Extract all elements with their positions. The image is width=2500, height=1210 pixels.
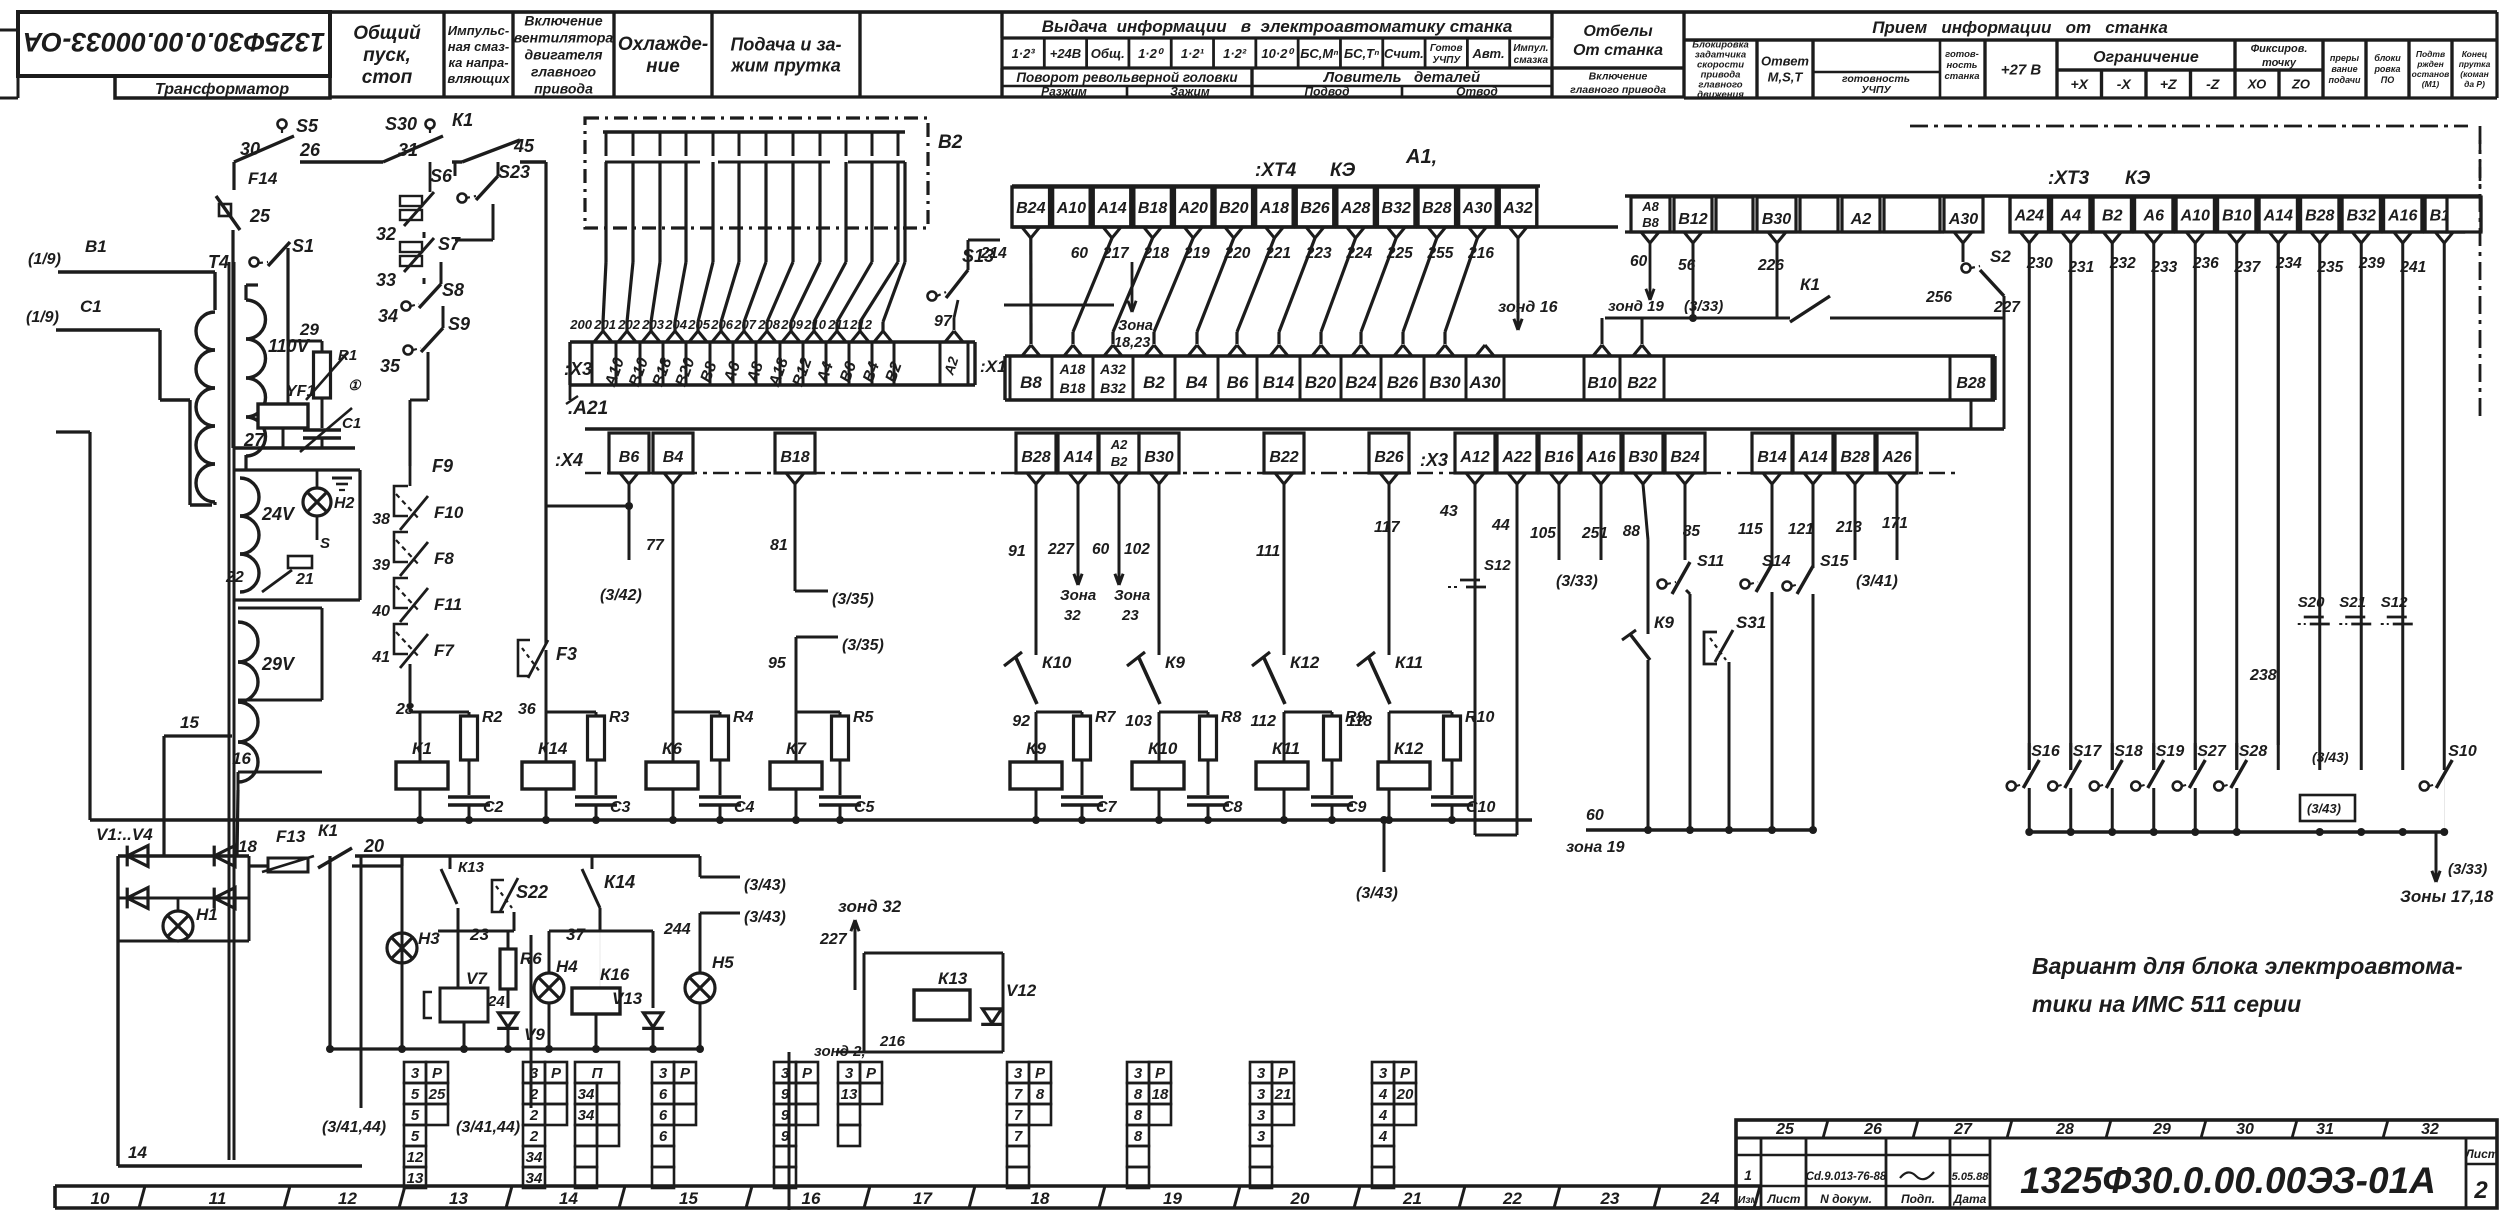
svg-text::Х3: :Х3 bbox=[564, 359, 592, 379]
svg-text:Импульс-: Импульс- bbox=[448, 23, 510, 38]
svg-text:жим прутка: жим прутка bbox=[730, 55, 840, 75]
svg-text:29: 29 bbox=[299, 320, 319, 339]
svg-text:С1: С1 bbox=[342, 415, 361, 432]
svg-text:21: 21 bbox=[1274, 1086, 1292, 1103]
svg-text:41: 41 bbox=[371, 649, 390, 666]
svg-text:32: 32 bbox=[376, 224, 396, 244]
svg-text:ржден: ржден bbox=[2416, 59, 2443, 69]
svg-text:А16: А16 bbox=[2387, 207, 2417, 224]
svg-text:201: 201 bbox=[593, 317, 616, 332]
svg-text:движения: движения bbox=[1697, 89, 1744, 100]
svg-text:К6: К6 bbox=[662, 739, 682, 758]
svg-text:В8: В8 bbox=[1642, 215, 1659, 230]
svg-text:238: 238 bbox=[2249, 667, 2277, 684]
svg-text:S10: S10 bbox=[2448, 743, 2477, 760]
svg-text:А14: А14 bbox=[2263, 207, 2293, 224]
svg-text:91: 91 bbox=[1008, 543, 1026, 560]
svg-text:F11: F11 bbox=[434, 595, 462, 614]
svg-text:227: 227 bbox=[1993, 299, 2021, 316]
svg-text:В18: В18 bbox=[1060, 380, 1086, 396]
svg-text:К13: К13 bbox=[938, 969, 968, 988]
svg-text:43: 43 bbox=[1439, 503, 1458, 520]
svg-text:3: 3 bbox=[411, 1065, 420, 1082]
svg-text:3: 3 bbox=[659, 1065, 668, 1082]
svg-text:10: 10 bbox=[91, 1189, 110, 1208]
svg-text:8: 8 bbox=[1134, 1107, 1143, 1124]
svg-text:(3/43): (3/43) bbox=[2312, 749, 2349, 765]
svg-text:главного: главного bbox=[531, 63, 597, 79]
svg-text:ZО: ZО bbox=[2291, 77, 2310, 92]
svg-text:1·2³: 1·2³ bbox=[1012, 46, 1036, 61]
svg-text:(3/33): (3/33) bbox=[1556, 573, 1598, 590]
svg-text:К9: К9 bbox=[1165, 653, 1185, 672]
svg-text:S2: S2 bbox=[1990, 247, 2011, 266]
svg-text:Авт.: Авт. bbox=[1471, 46, 1504, 61]
svg-text:24: 24 bbox=[487, 993, 505, 1010]
svg-text:F13: F13 bbox=[276, 827, 306, 846]
svg-text:Н1: Н1 bbox=[196, 905, 218, 924]
svg-text:95: 95 bbox=[768, 655, 787, 672]
svg-text:В28: В28 bbox=[1956, 375, 1985, 392]
svg-text:S19: S19 bbox=[2156, 743, 2185, 760]
svg-text:подачи: подачи bbox=[2329, 75, 2361, 85]
svg-text:В30: В30 bbox=[1628, 449, 1657, 466]
svg-text:20: 20 bbox=[363, 836, 384, 856]
svg-text:Зоны 17,18: Зоны 17,18 bbox=[2400, 887, 2494, 906]
svg-text:3: 3 bbox=[1257, 1065, 1266, 1082]
svg-text:M,S,T: M,S,T bbox=[1768, 70, 1804, 85]
svg-text:4: 4 bbox=[1378, 1107, 1388, 1124]
svg-text:(1/9): (1/9) bbox=[28, 251, 61, 268]
svg-text:Ловитель деталей: Ловитель деталей bbox=[1323, 69, 1480, 86]
svg-text:Р: Р bbox=[1400, 1065, 1411, 1082]
svg-text:В24: В24 bbox=[1345, 373, 1377, 392]
svg-text:-Z: -Z bbox=[2206, 76, 2220, 92]
svg-text::ХТ4: :ХТ4 bbox=[1255, 160, 1297, 181]
svg-text:F9: F9 bbox=[432, 456, 453, 476]
svg-text:Сd.9.013-76-88: Сd.9.013-76-88 bbox=[1806, 1171, 1887, 1183]
svg-text:тики на ИМС 511 серии: тики на ИМС 511 серии bbox=[2032, 991, 2301, 1017]
svg-text:34: 34 bbox=[378, 306, 398, 326]
svg-text:Т4: Т4 bbox=[208, 252, 229, 272]
svg-text:Р: Р bbox=[551, 1065, 562, 1082]
svg-text:пуск,: пуск, bbox=[363, 45, 411, 66]
svg-text:(М1): (М1) bbox=[2422, 79, 2440, 89]
svg-text:R1: R1 bbox=[338, 347, 357, 364]
svg-text:зонд 19: зонд 19 bbox=[1608, 298, 1664, 315]
svg-text:Н2: Н2 bbox=[334, 495, 355, 512]
svg-text:V9: V9 bbox=[524, 1025, 545, 1044]
svg-text:К1: К1 bbox=[452, 110, 473, 130]
svg-text:А18: А18 bbox=[1059, 361, 1086, 377]
svg-text:32: 32 bbox=[1064, 607, 1081, 624]
svg-text:224: 224 bbox=[1345, 245, 1372, 262]
svg-text:Охлажде-: Охлажде- bbox=[618, 34, 708, 55]
svg-text:210: 210 bbox=[803, 317, 826, 332]
svg-text:216: 216 bbox=[879, 1033, 906, 1050]
svg-text:(3/35): (3/35) bbox=[842, 637, 884, 654]
svg-text:27: 27 bbox=[1953, 1121, 1973, 1138]
svg-text:1325Ф30.0.00.00033-ОА: 1325Ф30.0.00.00033-ОА bbox=[23, 27, 325, 57]
svg-text:29V: 29V bbox=[261, 654, 296, 674]
svg-text:24V: 24V bbox=[261, 504, 296, 524]
svg-text:111: 111 bbox=[1256, 543, 1280, 560]
svg-text:112: 112 bbox=[1250, 713, 1276, 730]
svg-text:225: 225 bbox=[1386, 245, 1413, 262]
svg-text:К16: К16 bbox=[600, 965, 630, 984]
svg-text:①: ① bbox=[348, 377, 362, 393]
svg-text:7: 7 bbox=[1014, 1128, 1023, 1145]
svg-text:81: 81 bbox=[770, 537, 788, 554]
svg-text:Р: Р bbox=[1155, 1065, 1166, 1082]
svg-text:235: 235 bbox=[2316, 259, 2343, 276]
svg-text:45: 45 bbox=[513, 136, 535, 156]
svg-text:5: 5 bbox=[411, 1128, 420, 1145]
svg-text:S28: S28 bbox=[2239, 743, 2268, 760]
svg-text:Включение: Включение bbox=[1589, 70, 1648, 82]
svg-text:В2: В2 bbox=[1143, 373, 1165, 392]
svg-text:К11: К11 bbox=[1395, 653, 1423, 672]
svg-text:1: 1 bbox=[1744, 1167, 1752, 1183]
svg-text:К9: К9 bbox=[1654, 613, 1674, 632]
svg-text:F8: F8 bbox=[434, 549, 454, 568]
svg-text:239: 239 bbox=[2358, 255, 2385, 272]
svg-text:25: 25 bbox=[428, 1086, 446, 1103]
svg-text:В16: В16 bbox=[1544, 449, 1573, 466]
svg-text:К12: К12 bbox=[1290, 653, 1320, 672]
svg-text:А30: А30 bbox=[1948, 211, 1978, 228]
svg-text:+Z: +Z bbox=[2160, 76, 2177, 92]
svg-text:3: 3 bbox=[1379, 1065, 1388, 1082]
svg-text:Разжим: Разжим bbox=[1041, 85, 1087, 99]
svg-text:214: 214 bbox=[980, 245, 1007, 262]
svg-text::Х1: :Х1 bbox=[980, 357, 1006, 376]
svg-text:S5: S5 bbox=[296, 116, 319, 136]
svg-text:S12: S12 bbox=[1484, 557, 1511, 574]
svg-text:зона 19: зона 19 bbox=[1566, 839, 1625, 856]
svg-text:22: 22 bbox=[1502, 1189, 1522, 1208]
svg-text:34: 34 bbox=[578, 1107, 595, 1124]
svg-text:202: 202 bbox=[617, 317, 640, 332]
svg-text:18: 18 bbox=[1152, 1086, 1169, 1103]
svg-text:ПО: ПО bbox=[2381, 75, 2394, 85]
svg-text:S15: S15 bbox=[1820, 553, 1850, 570]
svg-text:К10: К10 bbox=[1148, 739, 1178, 758]
svg-text:Р: Р bbox=[1278, 1065, 1289, 1082]
svg-text:V7: V7 bbox=[466, 969, 488, 988]
svg-text:33: 33 bbox=[376, 270, 396, 290]
svg-text:В28: В28 bbox=[1422, 200, 1451, 217]
svg-text:S27: S27 bbox=[2197, 743, 2227, 760]
svg-text:вентилятора: вентилятора bbox=[514, 29, 614, 45]
svg-text:4: 4 bbox=[1378, 1128, 1388, 1145]
svg-text:29: 29 bbox=[2152, 1121, 2171, 1138]
svg-text:В10: В10 bbox=[2222, 207, 2251, 224]
svg-text:УЧПУ: УЧПУ bbox=[1861, 84, 1891, 96]
svg-text:Счит.: Счит. bbox=[1384, 46, 1424, 61]
svg-text:В20: В20 bbox=[1305, 373, 1337, 392]
svg-text:В18: В18 bbox=[1138, 200, 1167, 217]
svg-text:226: 226 bbox=[1757, 257, 1784, 274]
svg-text:37: 37 bbox=[566, 925, 586, 944]
svg-text:В2: В2 bbox=[1111, 454, 1128, 469]
svg-text:32: 32 bbox=[2421, 1121, 2439, 1138]
svg-text:18,23: 18,23 bbox=[1114, 335, 1150, 351]
svg-text:23: 23 bbox=[469, 925, 489, 944]
svg-text:9: 9 bbox=[781, 1086, 790, 1103]
svg-text:R5: R5 bbox=[853, 709, 875, 726]
svg-text:YF1: YF1 bbox=[286, 383, 315, 400]
svg-text:118: 118 bbox=[1346, 713, 1372, 730]
svg-text:С5: С5 bbox=[854, 799, 876, 816]
svg-text:S21: S21 bbox=[2339, 594, 2366, 611]
svg-text:60: 60 bbox=[1071, 245, 1089, 262]
svg-text:Выдача информации в электр: Выдача информации в электроавтоматику ст… bbox=[1042, 17, 1513, 36]
svg-text:25: 25 bbox=[249, 206, 271, 226]
svg-text:Подтв: Подтв bbox=[2416, 49, 2445, 59]
svg-text:БС,Мⁿ: БС,Мⁿ bbox=[1300, 46, 1338, 61]
svg-text:В14: В14 bbox=[1263, 373, 1295, 392]
svg-text:1325Ф30.0.00.00ЭЗ-01А: 1325Ф30.0.00.00ЭЗ-01А bbox=[2020, 1160, 2436, 1201]
svg-text:8: 8 bbox=[1134, 1086, 1143, 1103]
svg-text::ХТ3: :ХТ3 bbox=[2048, 168, 2090, 189]
svg-text:УЧПУ: УЧПУ bbox=[1432, 55, 1461, 66]
svg-text:В32: В32 bbox=[1382, 200, 1411, 217]
svg-text:С9: С9 bbox=[1346, 799, 1367, 816]
svg-text:+27 В: +27 В bbox=[2001, 61, 2042, 78]
svg-text:38: 38 bbox=[372, 511, 390, 528]
svg-text:13: 13 bbox=[841, 1086, 858, 1103]
svg-text::Х3: :Х3 bbox=[1420, 450, 1448, 470]
svg-text:В22: В22 bbox=[1627, 375, 1656, 392]
svg-text:5: 5 bbox=[411, 1107, 420, 1124]
svg-text:117: 117 bbox=[1374, 519, 1401, 536]
svg-text:231: 231 bbox=[2067, 259, 2094, 276]
svg-text:233: 233 bbox=[2150, 259, 2177, 276]
svg-text:В26: В26 bbox=[1387, 373, 1419, 392]
svg-text:2: 2 bbox=[529, 1086, 539, 1103]
svg-text:237: 237 bbox=[2233, 259, 2261, 276]
svg-text:(3/42): (3/42) bbox=[600, 587, 642, 604]
svg-text:60: 60 bbox=[1092, 541, 1110, 558]
svg-text:121: 121 bbox=[1788, 521, 1814, 538]
svg-text:213: 213 bbox=[1835, 519, 1862, 536]
svg-text:V12: V12 bbox=[1006, 981, 1037, 1000]
svg-text:S11: S11 bbox=[1697, 553, 1724, 570]
svg-text:21: 21 bbox=[295, 571, 314, 588]
svg-text:9: 9 bbox=[781, 1107, 790, 1124]
svg-text:А30: А30 bbox=[1468, 373, 1501, 392]
svg-text:В20: В20 bbox=[1219, 200, 1248, 217]
svg-text:3: 3 bbox=[1257, 1107, 1266, 1124]
svg-text:В14: В14 bbox=[1757, 449, 1786, 466]
svg-text:К1: К1 bbox=[412, 739, 432, 758]
svg-text:R2: R2 bbox=[482, 709, 503, 726]
svg-text:Подп.: Подп. bbox=[1901, 1192, 1935, 1206]
svg-text:S8: S8 bbox=[442, 280, 464, 300]
svg-text:7: 7 bbox=[1014, 1086, 1023, 1103]
svg-text:-X: -X bbox=[2117, 76, 2133, 92]
svg-text:прутка: прутка bbox=[2459, 59, 2491, 69]
svg-text:стоп: стоп bbox=[362, 67, 413, 88]
svg-text:А2: А2 bbox=[1110, 437, 1128, 452]
svg-text:(1/9): (1/9) bbox=[26, 309, 59, 326]
svg-text:Вариант для блока электроавтом: Вариант для блока электроавтома- bbox=[2032, 953, 2463, 979]
svg-text:8: 8 bbox=[1134, 1128, 1143, 1145]
svg-text:212: 212 bbox=[849, 317, 872, 332]
svg-text:А22: А22 bbox=[1501, 449, 1531, 466]
svg-text:6: 6 bbox=[659, 1128, 668, 1145]
svg-text:22: 22 bbox=[225, 569, 244, 586]
svg-text:S22: S22 bbox=[516, 882, 548, 902]
svg-text:А30: А30 bbox=[1462, 200, 1492, 217]
svg-text:1·2¹: 1·2¹ bbox=[1181, 46, 1205, 61]
svg-text:28: 28 bbox=[395, 701, 414, 718]
svg-text:F14: F14 bbox=[248, 169, 278, 188]
svg-text:К11: К11 bbox=[1272, 739, 1300, 758]
svg-text:S31: S31 bbox=[1736, 613, 1766, 632]
svg-text:17: 17 bbox=[913, 1189, 933, 1208]
svg-text:С3: С3 bbox=[610, 799, 631, 816]
svg-text:24: 24 bbox=[1700, 1189, 1720, 1208]
svg-text:V1:..V4: V1:..V4 bbox=[96, 825, 153, 844]
svg-text:103: 103 bbox=[1125, 713, 1152, 730]
svg-text:S30: S30 bbox=[385, 114, 417, 134]
svg-text:23: 23 bbox=[1600, 1189, 1620, 1208]
svg-text:В4: В4 bbox=[663, 449, 684, 466]
svg-text:П: П bbox=[592, 1065, 604, 1082]
svg-text:3: 3 bbox=[1257, 1128, 1266, 1145]
svg-text:3: 3 bbox=[845, 1065, 854, 1082]
svg-text:6: 6 bbox=[659, 1107, 668, 1124]
svg-text:К1: К1 bbox=[318, 821, 338, 840]
svg-text:В12: В12 bbox=[1678, 211, 1707, 228]
svg-text:А6: А6 bbox=[2143, 207, 2165, 224]
svg-text:R8: R8 bbox=[1221, 709, 1242, 726]
svg-text:2: 2 bbox=[529, 1107, 539, 1124]
svg-text:ХО: ХО bbox=[2247, 77, 2267, 92]
svg-text:220: 220 bbox=[1224, 245, 1251, 262]
svg-text:S7: S7 bbox=[438, 234, 461, 254]
svg-text:А16: А16 bbox=[1585, 449, 1615, 466]
svg-text:16: 16 bbox=[232, 749, 251, 768]
svg-text:В10: В10 bbox=[1587, 375, 1616, 392]
svg-text:В22: В22 bbox=[1269, 449, 1298, 466]
svg-text:С2: С2 bbox=[483, 799, 504, 816]
svg-text:В2: В2 bbox=[2102, 207, 2123, 224]
svg-text:Н3: Н3 bbox=[418, 929, 440, 948]
svg-text:Отбелы: Отбелы bbox=[1583, 23, 1653, 40]
svg-text:К12: К12 bbox=[1394, 739, 1424, 758]
svg-text:ние: ние bbox=[646, 56, 680, 77]
svg-text:21: 21 bbox=[1402, 1189, 1422, 1208]
svg-text:А4: А4 bbox=[2060, 207, 2082, 224]
svg-text:40: 40 bbox=[371, 603, 390, 620]
svg-text:(3/43): (3/43) bbox=[2307, 801, 2341, 816]
svg-text:В2: В2 bbox=[938, 132, 963, 153]
svg-text:S6: S6 bbox=[430, 166, 453, 186]
svg-text:К13: К13 bbox=[458, 859, 485, 876]
svg-text:C1: C1 bbox=[80, 297, 102, 316]
svg-text:16: 16 bbox=[802, 1189, 821, 1208]
svg-text:219: 219 bbox=[1183, 245, 1210, 262]
svg-text:R7: R7 bbox=[1095, 709, 1117, 726]
svg-text:А10: А10 bbox=[2180, 207, 2210, 224]
svg-text:227: 227 bbox=[1047, 541, 1075, 558]
svg-text:ровка: ровка bbox=[2373, 64, 2400, 74]
svg-text:Импул.: Импул. bbox=[1513, 43, 1548, 54]
svg-text:3: 3 bbox=[530, 1065, 539, 1082]
svg-text:30: 30 bbox=[2236, 1121, 2254, 1138]
svg-text:(3/35): (3/35) bbox=[832, 591, 874, 608]
svg-text:F10: F10 bbox=[434, 503, 464, 522]
svg-text:S14: S14 bbox=[1762, 553, 1791, 570]
svg-text:26: 26 bbox=[1863, 1121, 1882, 1138]
svg-text:(коман: (коман bbox=[2460, 69, 2488, 79]
svg-text:31: 31 bbox=[398, 140, 418, 160]
svg-text:206: 206 bbox=[710, 317, 733, 332]
svg-text:главного привода: главного привода bbox=[1570, 84, 1666, 96]
svg-text:255: 255 bbox=[1427, 245, 1454, 262]
svg-text:11: 11 bbox=[209, 1189, 227, 1208]
svg-text:(3/41,44): (3/41,44) bbox=[322, 1119, 386, 1136]
svg-text:241: 241 bbox=[2399, 259, 2426, 276]
svg-text:Лист: Лист bbox=[2465, 1147, 2499, 1161]
svg-text:А2: А2 bbox=[1850, 211, 1872, 228]
svg-text:15: 15 bbox=[180, 713, 199, 732]
svg-text:Фиксиров.: Фиксиров. bbox=[2251, 43, 2308, 55]
svg-text:Лист: Лист bbox=[1767, 1192, 1801, 1206]
svg-text:А1‚: А1‚ bbox=[1405, 146, 1437, 168]
svg-text:(3/43): (3/43) bbox=[744, 877, 786, 894]
svg-text:станка: станка bbox=[1945, 71, 1980, 82]
svg-text:(3/43): (3/43) bbox=[1356, 885, 1398, 902]
svg-text:смазка: смазка bbox=[1514, 55, 1549, 66]
svg-text:3: 3 bbox=[1134, 1065, 1143, 1082]
svg-text:К10: К10 bbox=[1042, 653, 1072, 672]
svg-text:10·2⁰: 10·2⁰ bbox=[1261, 46, 1295, 61]
svg-text:1·2²: 1·2² bbox=[1223, 46, 1247, 61]
svg-text:S23: S23 bbox=[498, 162, 530, 182]
svg-text:6: 6 bbox=[659, 1086, 668, 1103]
svg-text:S12: S12 bbox=[2381, 594, 2408, 611]
svg-text:Р: Р bbox=[1035, 1065, 1046, 1082]
svg-text:18: 18 bbox=[238, 837, 257, 856]
svg-text:Зажим: Зажим bbox=[1170, 85, 1210, 99]
svg-text:В4: В4 bbox=[1186, 373, 1208, 392]
svg-text:А28: А28 bbox=[1340, 200, 1370, 217]
svg-text:А32: А32 bbox=[1099, 361, 1126, 377]
svg-text:204: 204 bbox=[664, 317, 687, 332]
svg-text:Изм: Изм bbox=[1738, 1194, 1759, 1206]
svg-text:44: 44 bbox=[1491, 517, 1510, 534]
svg-text:20: 20 bbox=[1396, 1086, 1414, 1103]
svg-text:217: 217 bbox=[1102, 245, 1130, 262]
svg-text:35: 35 bbox=[380, 356, 401, 376]
svg-text:А8: А8 bbox=[1641, 199, 1659, 214]
svg-text:14: 14 bbox=[559, 1189, 578, 1208]
svg-text:зонд 32: зонд 32 bbox=[838, 897, 902, 916]
svg-text:18: 18 bbox=[1031, 1189, 1050, 1208]
svg-text:С10: С10 bbox=[1466, 799, 1495, 816]
svg-text:39: 39 bbox=[372, 557, 390, 574]
svg-text:БС,Тⁿ: БС,Тⁿ bbox=[1344, 46, 1379, 61]
svg-text:ная смаз-: ная смаз- bbox=[448, 39, 509, 54]
svg-text:К7: К7 bbox=[786, 739, 807, 758]
svg-text:218: 218 bbox=[1142, 245, 1169, 262]
svg-text:S: S bbox=[320, 535, 330, 552]
svg-text:Ответ: Ответ bbox=[1761, 54, 1809, 69]
